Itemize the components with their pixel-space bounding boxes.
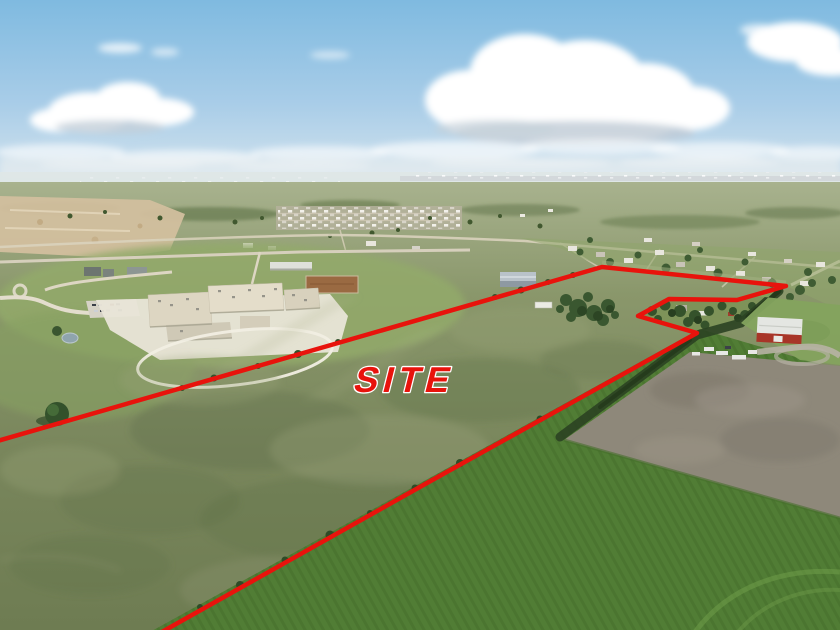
housing-subdivision	[276, 206, 462, 230]
aerial-photo-canvas: SITE	[0, 0, 840, 630]
aerial-photo: SITE	[0, 0, 840, 630]
red-barn	[756, 317, 802, 344]
site-label: SITE	[350, 360, 460, 400]
